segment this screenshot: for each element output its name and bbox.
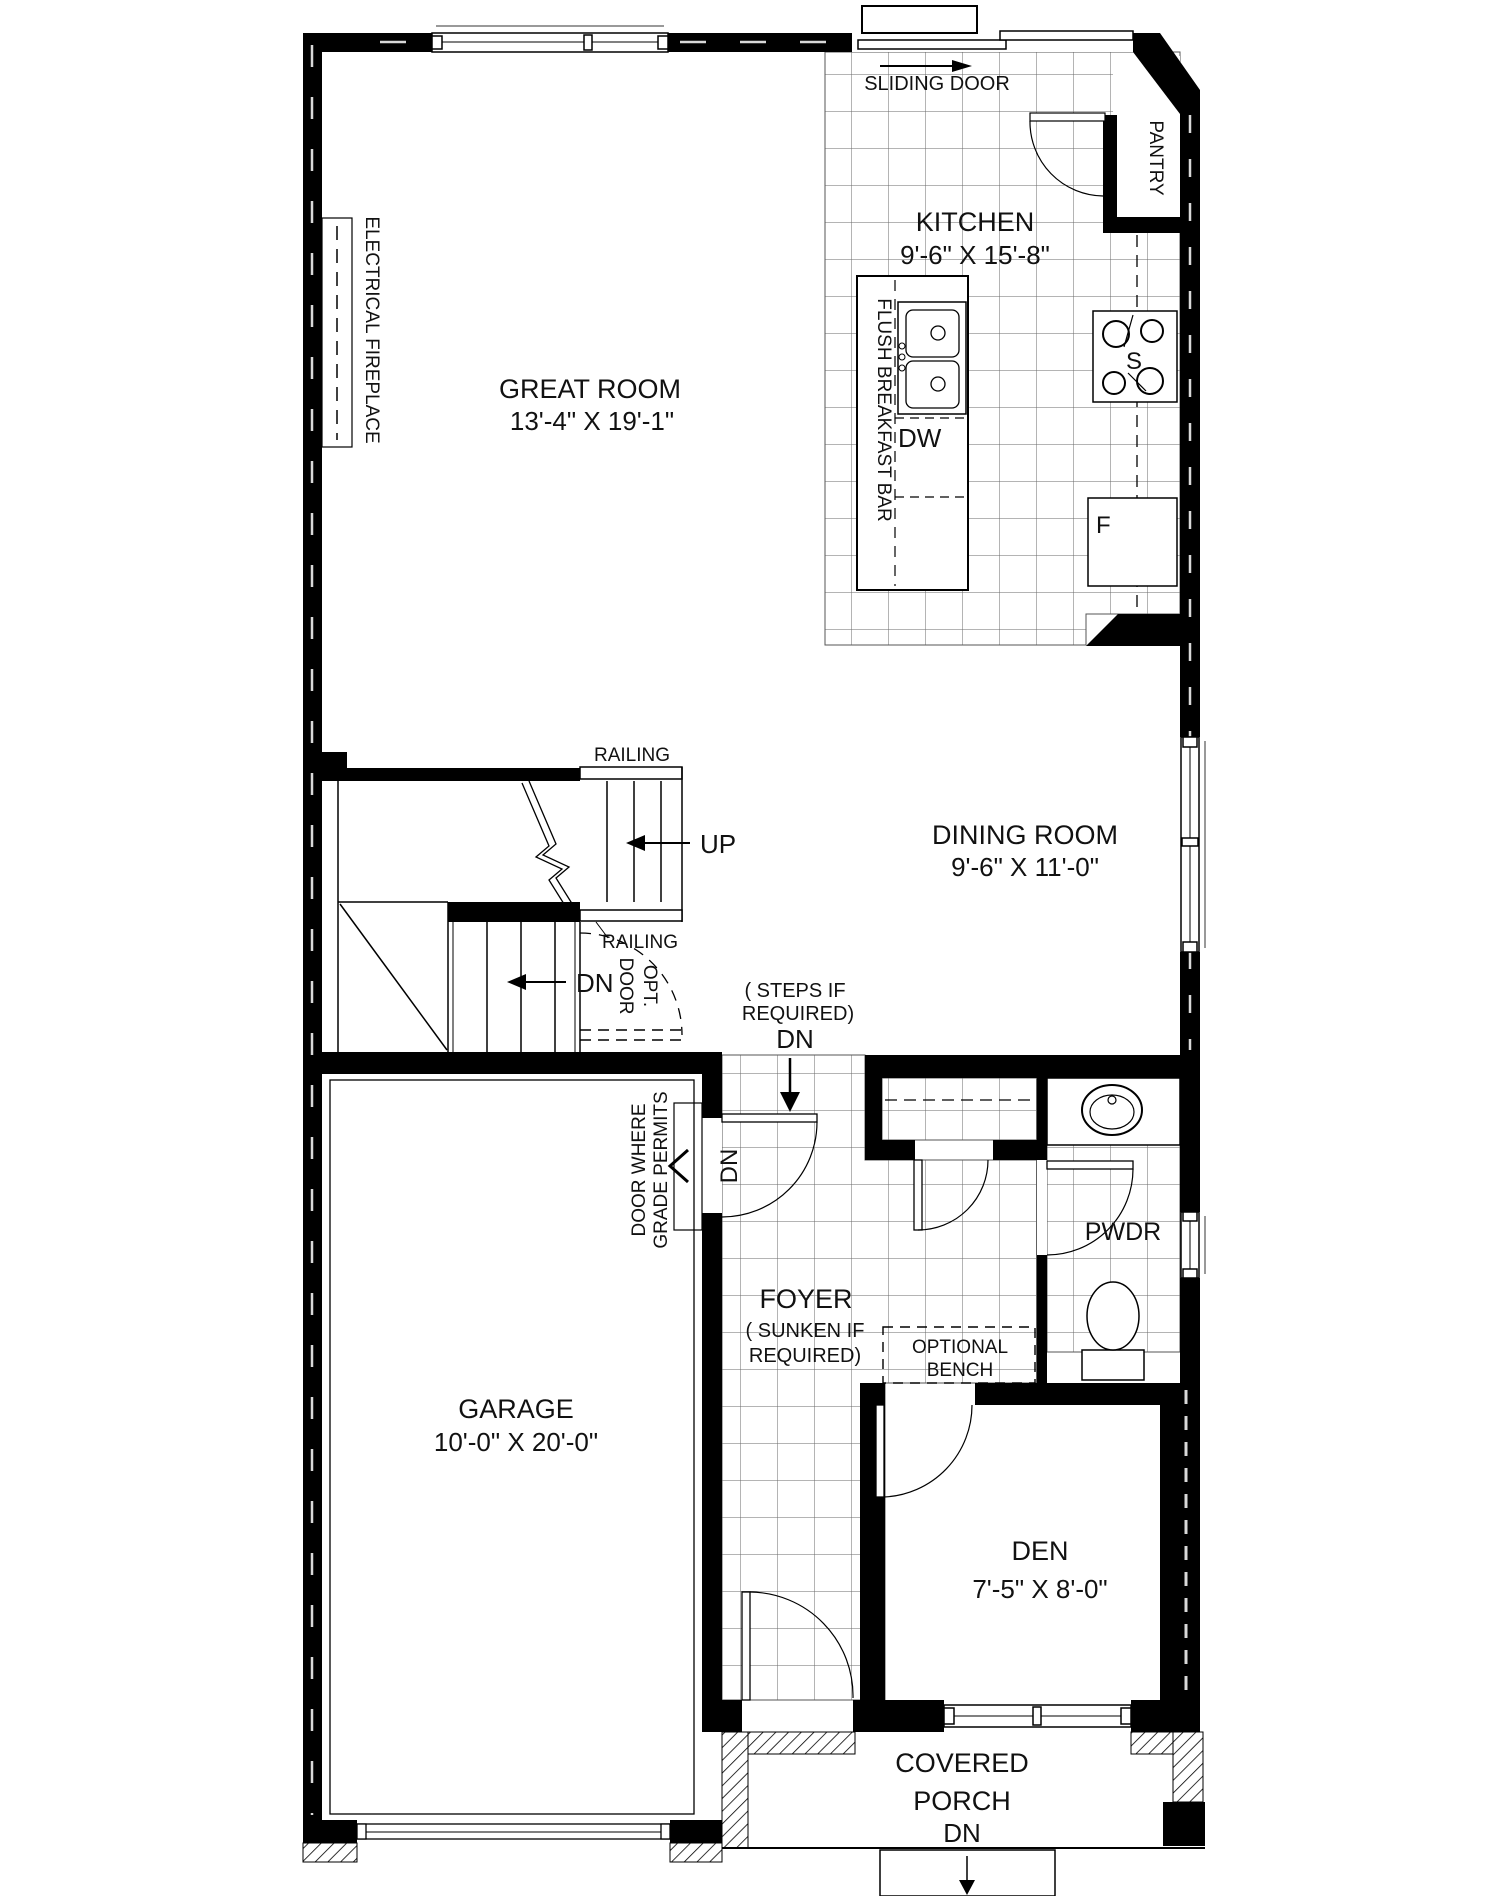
fridge-label: F [1096, 512, 1111, 539]
grade-door-label-2: GRADE PERMITS [651, 1091, 672, 1248]
porch-hatch-right [1173, 1732, 1203, 1802]
garage-dims: 10'-0" X 20'-0" [434, 1427, 598, 1457]
garage-corner-hatch-left [303, 1843, 357, 1862]
top-wall-left-segment [303, 33, 432, 52]
den-dims: 7'-5" X 8'-0" [972, 1574, 1107, 1604]
opt-door-label-2: DOOR [615, 958, 636, 1015]
stairs-dn-label: DN [576, 968, 614, 998]
front-wall-mid-segment [853, 1700, 944, 1732]
kitchen-sink [898, 302, 966, 414]
railing-mid [580, 910, 682, 921]
pantry-label: PANTRY [1145, 120, 1166, 196]
porch-post [1163, 1802, 1205, 1846]
toilet [1082, 1282, 1144, 1380]
kitchen-dims: 9'-6" X 15'-8" [900, 240, 1050, 270]
den-label: DEN [1011, 1536, 1068, 1566]
grade-door-arrow-icon [670, 1150, 688, 1182]
dw-label: DW [898, 423, 942, 453]
garage-corner-hatch-right [670, 1843, 722, 1862]
great-room-window [432, 26, 668, 52]
den-door [876, 1405, 972, 1497]
pwdr-label: PWDR [1085, 1218, 1161, 1246]
dining-room-dims: 9'-6" X 11'-0" [951, 852, 1099, 882]
dining-room-label: DINING ROOM [932, 820, 1118, 850]
right-wall-pwdr-lower [1180, 1278, 1200, 1383]
stair-garage-wall [303, 1052, 722, 1074]
right-wall-pwdr-upper [1180, 1078, 1200, 1212]
steps-if-required-1: ( STEPS IF [744, 980, 845, 1002]
grade-door-dn-label: DN [716, 1149, 743, 1184]
garage-label: GARAGE [458, 1394, 574, 1424]
den-window [944, 1705, 1131, 1727]
flush-breakfast-bar-label: FLUSH BREAKFAST BAR [873, 298, 894, 522]
stair-break-line [522, 783, 569, 912]
kitchen-dining-wall [1086, 614, 1200, 646]
railing-top-label: RAILING [594, 745, 670, 766]
up-arrow-icon [626, 835, 690, 851]
covered-porch-dn-label: DN [943, 1818, 981, 1848]
opt-door-label-1: OPT. [639, 965, 660, 1007]
optional-bench-label-1: OPTIONAL [912, 1337, 1008, 1358]
front-wall-right-segment [1131, 1700, 1200, 1732]
pantry-bottom-wall [1103, 217, 1180, 233]
up-label: UP [700, 829, 736, 859]
closet-bottom-wall-right-stub [993, 1140, 1047, 1160]
pwdr-left-wall-lower [1037, 1255, 1047, 1383]
great-room-dims: 13'-4" X 19'-1" [510, 406, 674, 436]
kitchen-label: KITCHEN [916, 207, 1035, 237]
floor-plan-page: GREAT ROOM 13'-4" X 19'-1" KITCHEN 9'-6"… [0, 0, 1500, 1896]
railing-mid-label: RAILING [602, 932, 678, 953]
den-right-party-wall [1160, 1383, 1200, 1705]
sliding-door-bumpout [862, 6, 977, 33]
foyer-note-1: ( SUNKEN IF [746, 1320, 865, 1342]
stair-top-wall-pier [322, 752, 347, 781]
electrical-fireplace [322, 218, 352, 447]
steps-dn-label: DN [776, 1024, 814, 1054]
foyer-label: FOYER [759, 1284, 852, 1314]
stair-top-wall [322, 768, 580, 781]
stair-landing-wall [448, 902, 580, 922]
covered-porch-label-2: PORCH [913, 1786, 1011, 1816]
winder-tread [340, 904, 447, 1050]
garage-overhead-door [357, 1820, 670, 1843]
sliding-door-label: SLIDING DOOR [864, 73, 1010, 95]
stove-label: S [1126, 348, 1142, 375]
porch-hatch-left [722, 1732, 748, 1848]
foyer-note-2: REQUIRED) [749, 1345, 861, 1367]
garage-front-wall-right [670, 1820, 722, 1843]
powder-room-window [1181, 1212, 1205, 1278]
garage-front-wall-left [303, 1820, 357, 1843]
porch-step [880, 1850, 1055, 1896]
garage-foyer-wall-lower [702, 1213, 722, 1732]
closet-bottom-wall-left-stub [865, 1140, 915, 1160]
great-room-label: GREAT ROOM [499, 374, 681, 404]
electrical-fireplace-label: ELECTRICAL FIREPLACE [361, 216, 382, 443]
right-wall-kitchen [1180, 108, 1200, 614]
stair-break-line-2 [529, 781, 576, 910]
pantry-left-wall [1103, 115, 1117, 233]
porch-hatch-top-left [748, 1732, 855, 1754]
dining-foyer-wall [865, 1055, 1200, 1078]
covered-porch-label-1: COVERED [895, 1748, 1029, 1778]
steps-if-required-2: REQUIRED) [742, 1003, 854, 1025]
stairs-dn-arrow-icon [507, 974, 566, 990]
railing-top [580, 767, 682, 779]
closet-tile-floor [882, 1078, 1037, 1140]
grade-door-label-1: DOOR WHERE [629, 1104, 650, 1237]
porch-hatch-top-right [1131, 1732, 1173, 1754]
optional-bench-label-2: BENCH [927, 1360, 994, 1381]
floor-plan-drawing: GREAT ROOM 13'-4" X 19'-1" KITCHEN 9'-6"… [0, 0, 1500, 1896]
dining-room-window [1181, 737, 1205, 952]
garage-door-landing [674, 1103, 702, 1230]
